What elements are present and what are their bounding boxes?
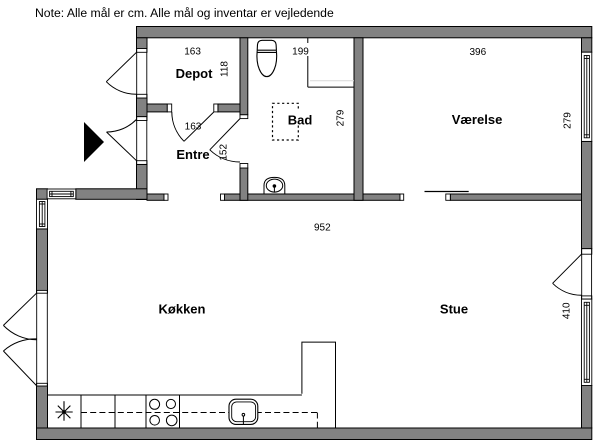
svg-text:Køkken: Køkken <box>159 302 206 317</box>
svg-text:Note: Alle mål er cm. Alle mål: Note: Alle mål er cm. Alle mål og invent… <box>35 6 334 20</box>
svg-text:Depot: Depot <box>176 66 214 81</box>
svg-text:199: 199 <box>292 46 309 57</box>
svg-text:Bad: Bad <box>288 113 313 128</box>
svg-text:Entre: Entre <box>176 147 209 162</box>
svg-text:Værelse: Værelse <box>452 112 503 127</box>
svg-text:396: 396 <box>469 47 486 58</box>
svg-text:952: 952 <box>314 223 331 234</box>
svg-text:410: 410 <box>562 302 573 319</box>
svg-text:279: 279 <box>335 109 346 126</box>
svg-text:279: 279 <box>563 112 574 129</box>
svg-text:152: 152 <box>219 144 230 161</box>
svg-text:Stue: Stue <box>440 302 468 317</box>
svg-text:163: 163 <box>184 47 201 58</box>
svg-text:163: 163 <box>185 122 202 133</box>
svg-text:118: 118 <box>220 61 231 77</box>
